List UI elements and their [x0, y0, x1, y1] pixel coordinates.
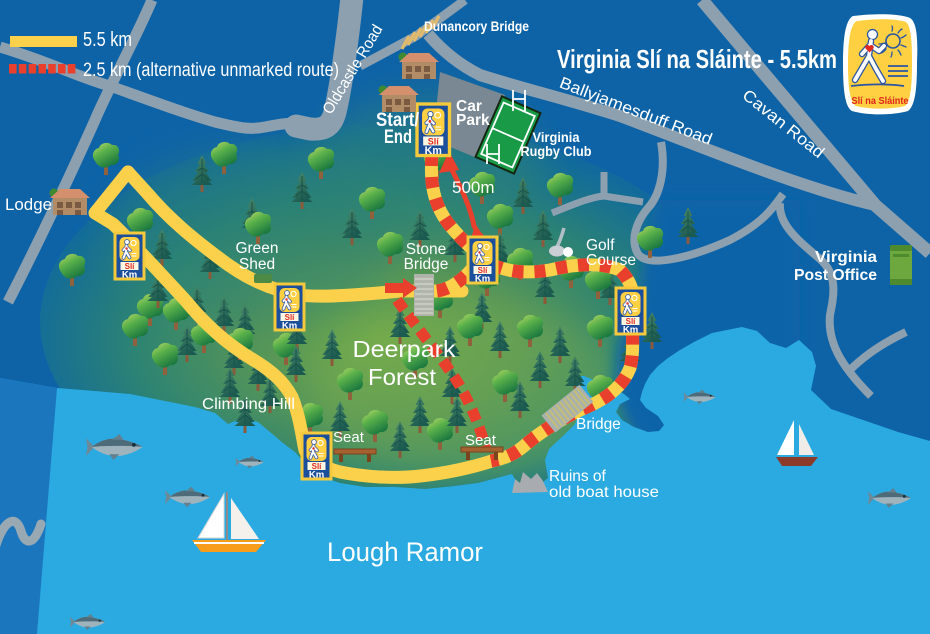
- svg-text:Bridge: Bridge: [404, 256, 449, 273]
- svg-text:old boat house: old boat house: [549, 484, 659, 501]
- svg-text:500m: 500m: [452, 178, 495, 197]
- svg-text:Post Office: Post Office: [794, 267, 877, 284]
- svg-text:Deerpark: Deerpark: [353, 336, 457, 362]
- svg-text:Ruins of: Ruins of: [549, 468, 607, 485]
- svg-text:Green: Green: [235, 240, 278, 257]
- svg-text:Lodge: Lodge: [5, 196, 52, 214]
- svg-text:Course: Course: [586, 252, 636, 269]
- svg-text:Shed: Shed: [239, 256, 275, 273]
- svg-text:Seat: Seat: [465, 432, 497, 449]
- svg-text:Park: Park: [456, 112, 490, 129]
- svg-text:Virginia: Virginia: [815, 249, 877, 266]
- svg-text:Rugby Club: Rugby Club: [521, 143, 592, 159]
- svg-text:5.5 km: 5.5 km: [83, 29, 132, 51]
- svg-text:Bridge: Bridge: [576, 416, 621, 433]
- svg-text:Dunancory Bridge: Dunancory Bridge: [424, 18, 529, 34]
- svg-text:Seat: Seat: [333, 429, 365, 446]
- svg-text:End: End: [384, 127, 412, 148]
- svg-text:Slí na Sláinte: Slí na Sláinte: [852, 96, 909, 107]
- svg-text:Lough Ramor: Lough Ramor: [327, 537, 483, 567]
- svg-text:Virginia Slí na Sláinte - 5.5k: Virginia Slí na Sláinte - 5.5km: [557, 44, 837, 74]
- svg-text:Climbing Hill: Climbing Hill: [202, 396, 295, 413]
- svg-text:Forest: Forest: [368, 364, 437, 390]
- svg-text:2.5 km (alternative unmarked r: 2.5 km (alternative unmarked route): [83, 60, 339, 81]
